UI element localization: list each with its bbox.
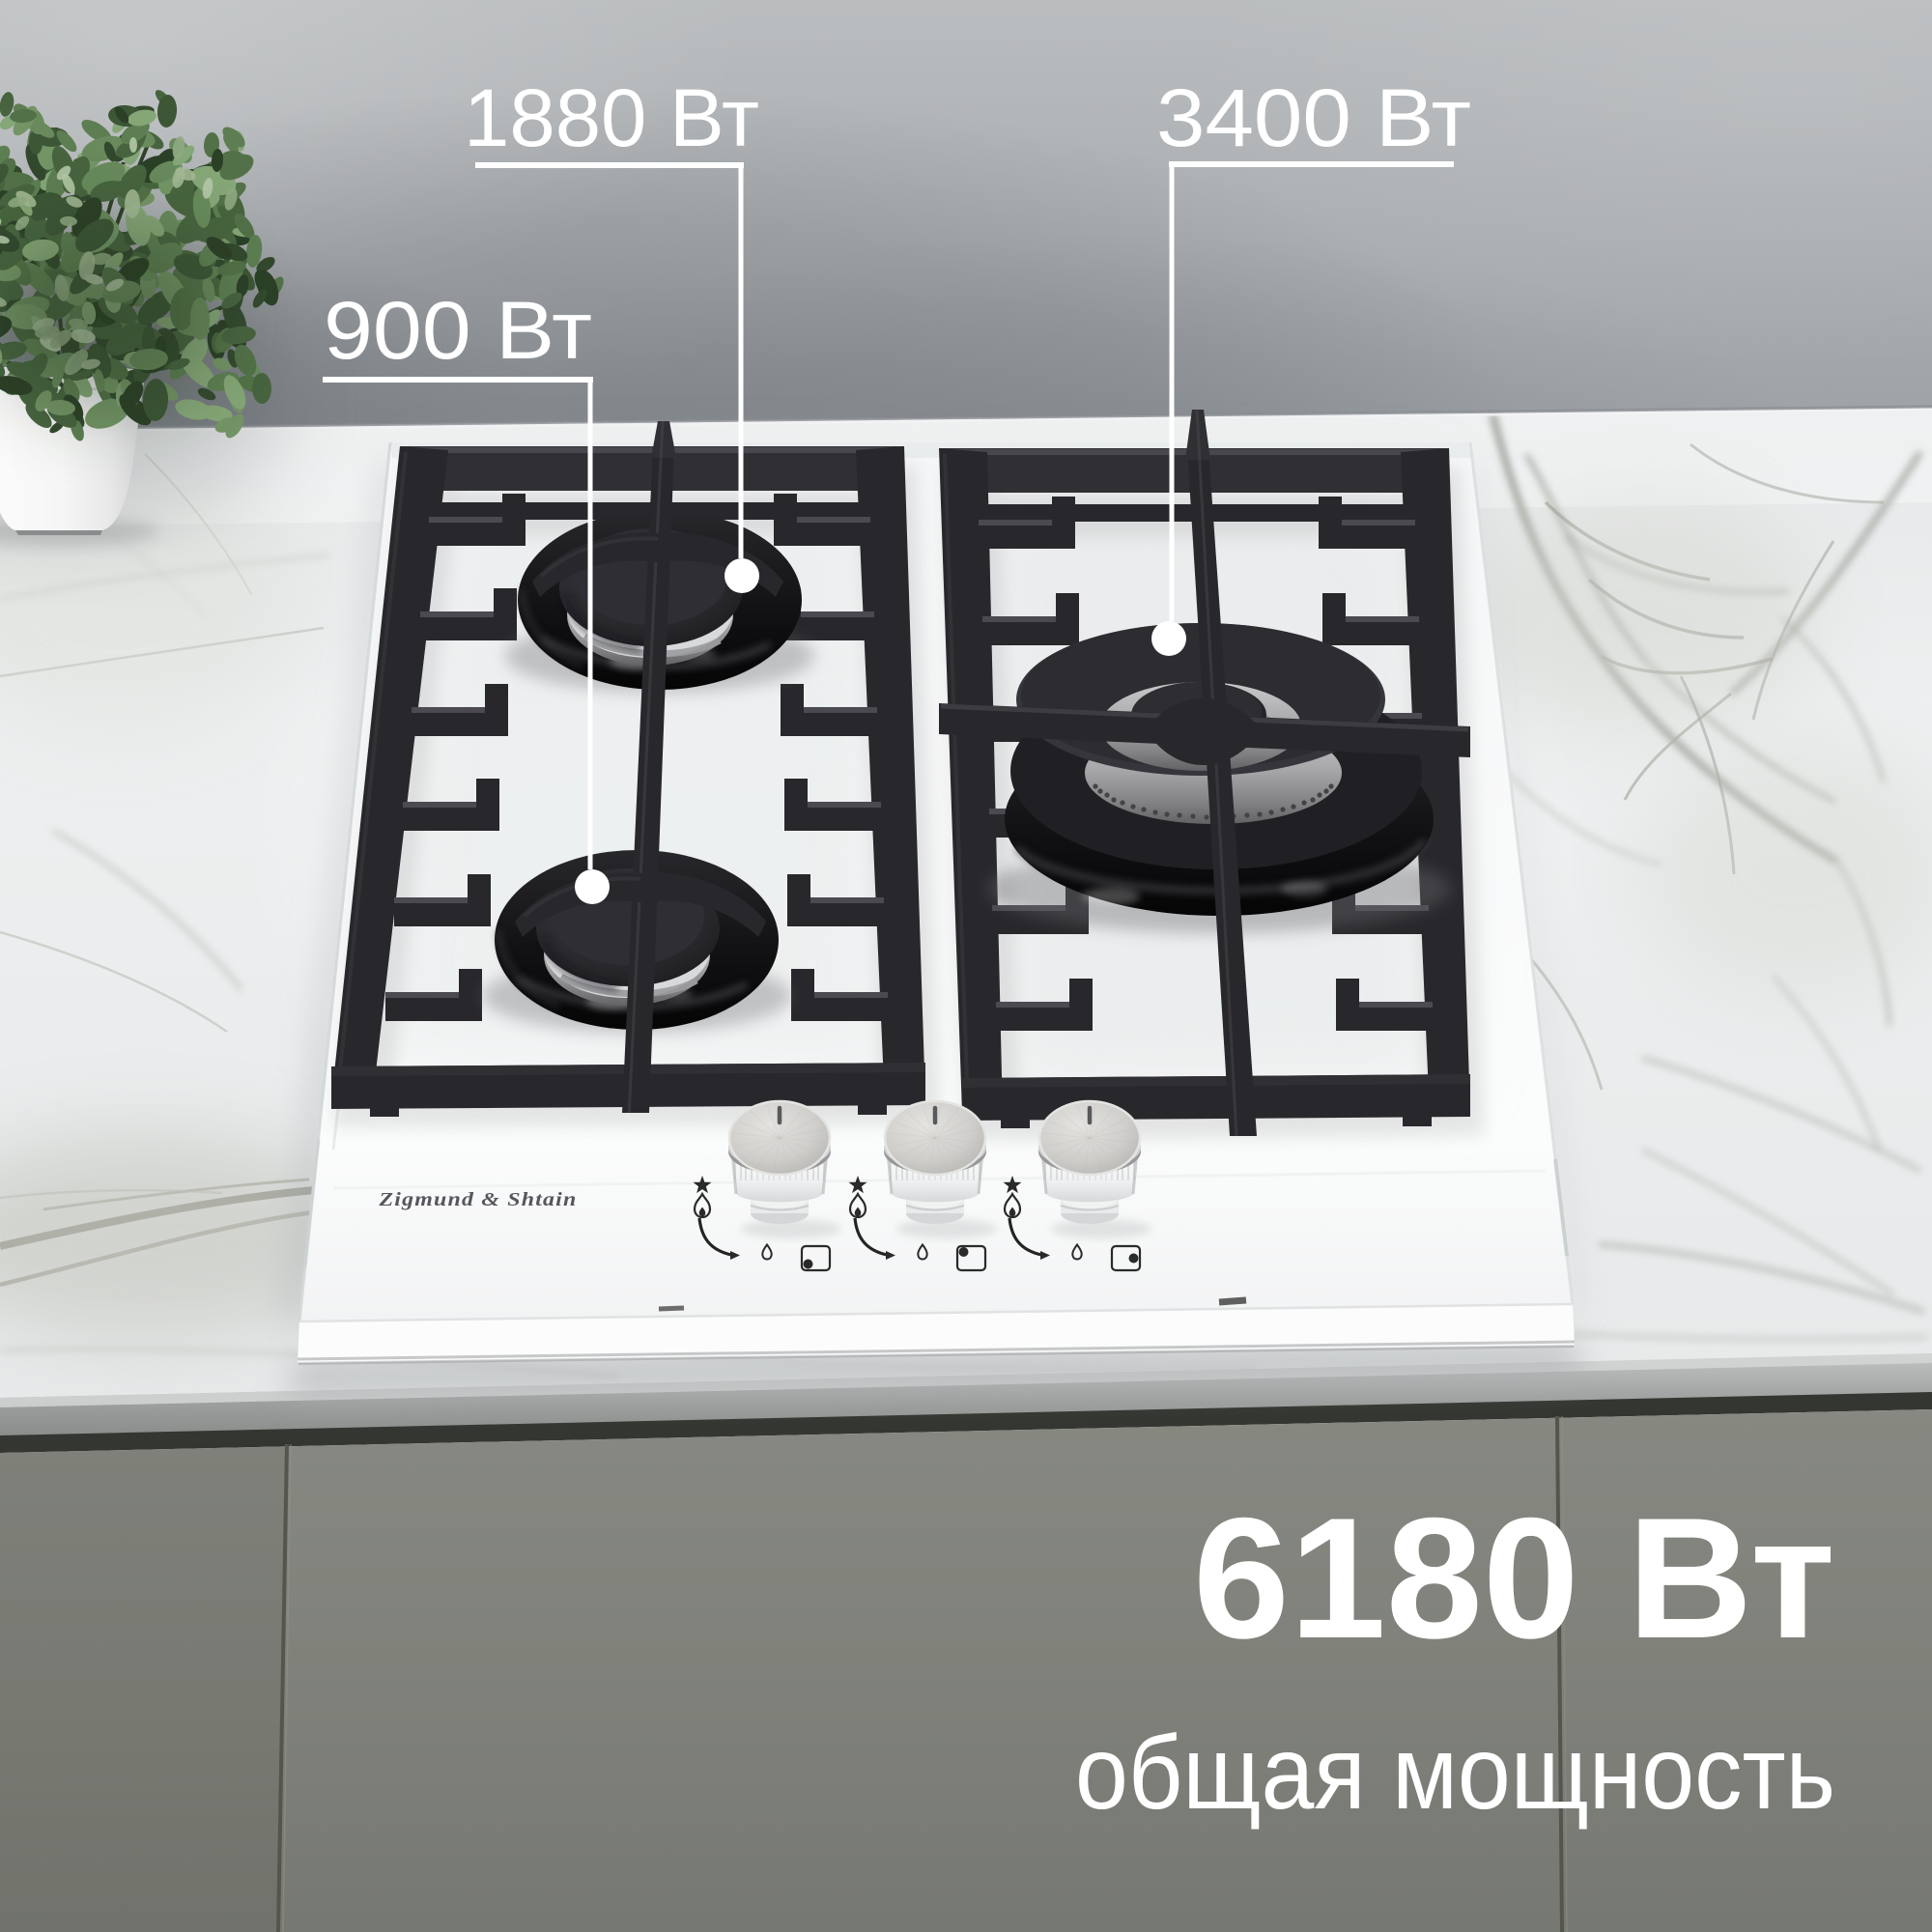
svg-text:900 Вт: 900 Вт bbox=[324, 285, 592, 376]
svg-text:Zigmund & Shtain: Zigmund & Shtain bbox=[378, 1189, 577, 1210]
svg-text:общая мощность: общая мощность bbox=[1075, 1714, 1835, 1831]
svg-text:6180 Вт: 6180 Вт bbox=[1193, 1482, 1835, 1674]
svg-text:1880 Вт: 1880 Вт bbox=[464, 72, 759, 163]
svg-text:3400 Вт: 3400 Вт bbox=[1156, 72, 1471, 163]
